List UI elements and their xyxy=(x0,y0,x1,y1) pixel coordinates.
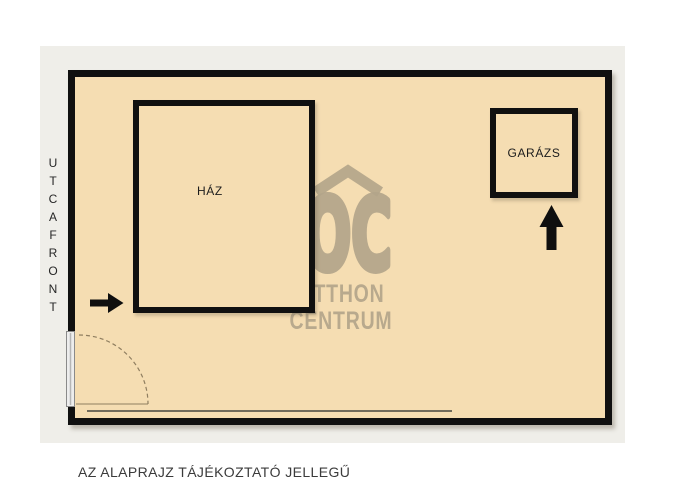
floor-plan-page: OC OTTHON CENTRUM HÁZ GARÁZS UTCAFRONT A… xyxy=(0,0,682,500)
garage-room: GARÁZS xyxy=(490,108,578,198)
street-front-label: UTCAFRONT xyxy=(44,156,62,318)
caption-text: AZ ALAPRAJZ TÁJÉKOZTATÓ JELLEGŰ xyxy=(78,464,350,480)
house-label: HÁZ xyxy=(197,184,223,198)
house-room: HÁZ xyxy=(133,100,315,313)
garage-label: GARÁZS xyxy=(508,146,561,160)
